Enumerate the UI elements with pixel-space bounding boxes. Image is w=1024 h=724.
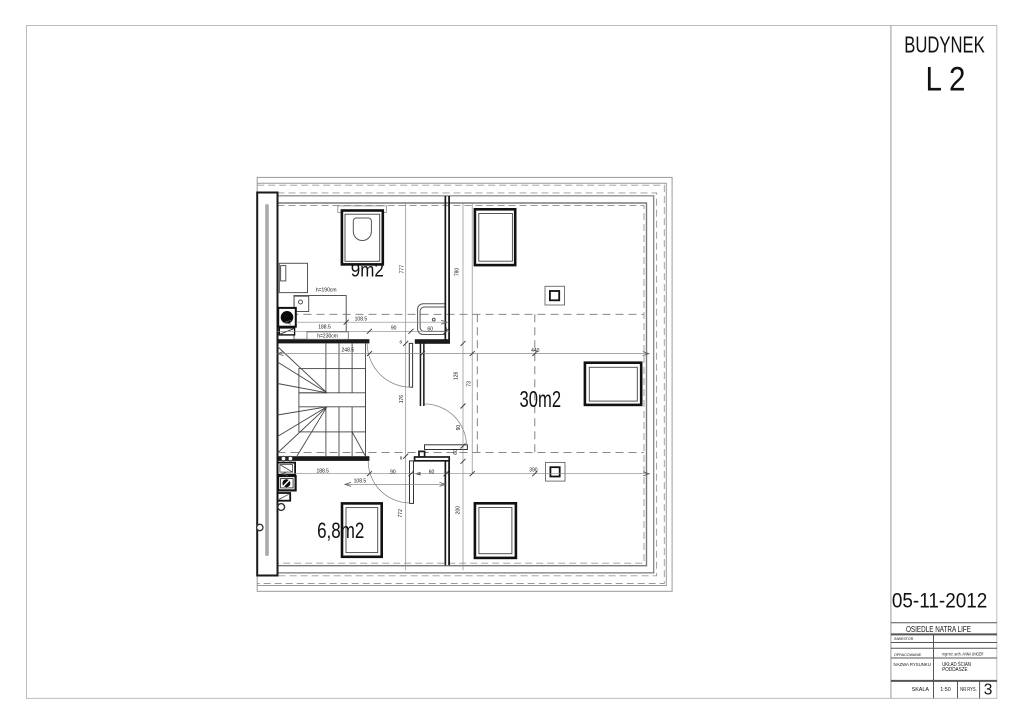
svg-text:8: 8 bbox=[448, 471, 451, 477]
svg-text:108.5: 108.5 bbox=[354, 478, 367, 484]
svg-text:SKALA: SKALA bbox=[912, 687, 930, 693]
svg-text:440: 440 bbox=[531, 348, 540, 354]
svg-text:90: 90 bbox=[456, 425, 462, 431]
svg-text:772: 772 bbox=[398, 509, 404, 518]
svg-text:90: 90 bbox=[391, 325, 397, 331]
svg-text:L 2: L 2 bbox=[926, 60, 966, 98]
svg-text:60: 60 bbox=[429, 469, 435, 475]
svg-text:248.5: 248.5 bbox=[342, 348, 355, 354]
svg-text:390: 390 bbox=[529, 467, 538, 473]
svg-text:INWESTOR: INWESTOR bbox=[894, 637, 914, 641]
svg-text:60: 60 bbox=[453, 449, 459, 455]
svg-text:NR RYS.: NR RYS. bbox=[960, 687, 977, 693]
svg-text:1:50: 1:50 bbox=[940, 687, 951, 693]
svg-text:126: 126 bbox=[454, 372, 460, 381]
svg-text:188.5: 188.5 bbox=[318, 325, 331, 331]
svg-text:108.5: 108.5 bbox=[355, 317, 368, 323]
svg-text:h=190cm: h=190cm bbox=[316, 287, 337, 293]
svg-text:90: 90 bbox=[390, 469, 396, 475]
svg-text:BUDYNEK: BUDYNEK bbox=[904, 31, 985, 57]
svg-text:188.5: 188.5 bbox=[316, 468, 329, 474]
svg-text:30m2: 30m2 bbox=[520, 386, 562, 412]
svg-text:NAZWA RYSUNKU: NAZWA RYSUNKU bbox=[894, 662, 932, 668]
svg-text:780: 780 bbox=[455, 268, 461, 277]
svg-text:h=230cm: h=230cm bbox=[317, 333, 338, 339]
svg-text:6,8m2: 6,8m2 bbox=[317, 518, 364, 543]
svg-text:3: 3 bbox=[984, 682, 993, 699]
svg-text:8: 8 bbox=[400, 456, 403, 461]
svg-text:mgr inż. arch. ANNA UNGER: mgr inż. arch. ANNA UNGER bbox=[942, 651, 983, 656]
svg-text:8: 8 bbox=[400, 340, 403, 345]
svg-text:OPRACOWANIE: OPRACOWANIE bbox=[894, 653, 922, 657]
svg-text:73: 73 bbox=[467, 381, 473, 387]
svg-text:176: 176 bbox=[399, 395, 405, 404]
svg-text:200: 200 bbox=[455, 506, 461, 515]
svg-text:8: 8 bbox=[445, 327, 448, 332]
svg-text:OSIEDLE NATRA LIFE: OSIEDLE NATRA LIFE bbox=[906, 625, 971, 634]
svg-text:05-11-2012: 05-11-2012 bbox=[892, 589, 988, 613]
svg-text:777: 777 bbox=[400, 265, 406, 274]
svg-text:60: 60 bbox=[427, 326, 433, 332]
svg-text:PODDASZE: PODDASZE bbox=[942, 667, 968, 673]
